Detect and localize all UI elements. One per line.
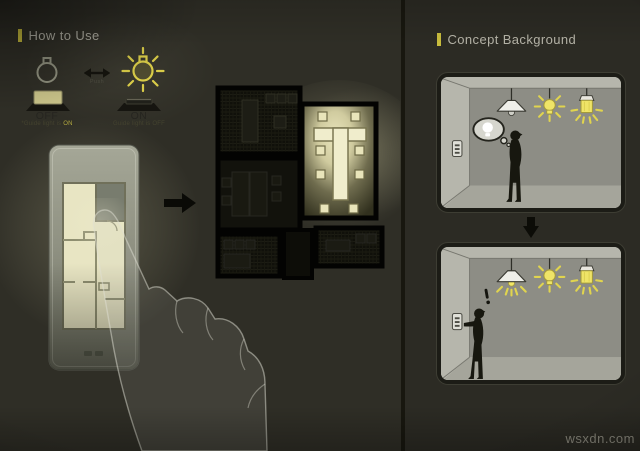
bulb-off-icon xyxy=(33,50,61,86)
on-caption: Guide light is OFF xyxy=(99,121,179,127)
switch-on-pictogram xyxy=(116,88,162,112)
concept-title: Concept Background xyxy=(448,32,577,47)
push-hint: Push xyxy=(80,79,114,85)
wall-switch xyxy=(452,141,462,157)
wall-switch xyxy=(452,314,462,330)
header-accent-bar xyxy=(18,29,22,42)
bulb-on-icon xyxy=(119,44,167,94)
pointing-hand xyxy=(56,198,346,451)
how-to-use-title: How to Use xyxy=(29,28,100,43)
swap-arrow-icon xyxy=(84,68,110,78)
room-scene-switch: ! xyxy=(441,247,621,380)
header-accent-bar xyxy=(437,33,441,46)
down-arrow-icon xyxy=(522,216,540,239)
on-caption-highlight: OFF xyxy=(152,121,165,127)
concept-header: Concept Background xyxy=(437,32,576,47)
concept-panel-bottom: ! xyxy=(437,243,625,384)
concept-panel-top xyxy=(437,73,625,212)
section-divider xyxy=(401,0,405,451)
room-scene-wondering xyxy=(441,77,621,208)
off-caption-highlight: ON xyxy=(63,121,72,127)
watermark: wsxdn.com xyxy=(565,431,635,446)
how-to-use-header: How to Use xyxy=(18,28,100,43)
switch-off-pictogram xyxy=(25,88,71,112)
off-caption: *Guide light is ON xyxy=(7,121,87,127)
poster: How to Use Push xyxy=(0,0,640,451)
